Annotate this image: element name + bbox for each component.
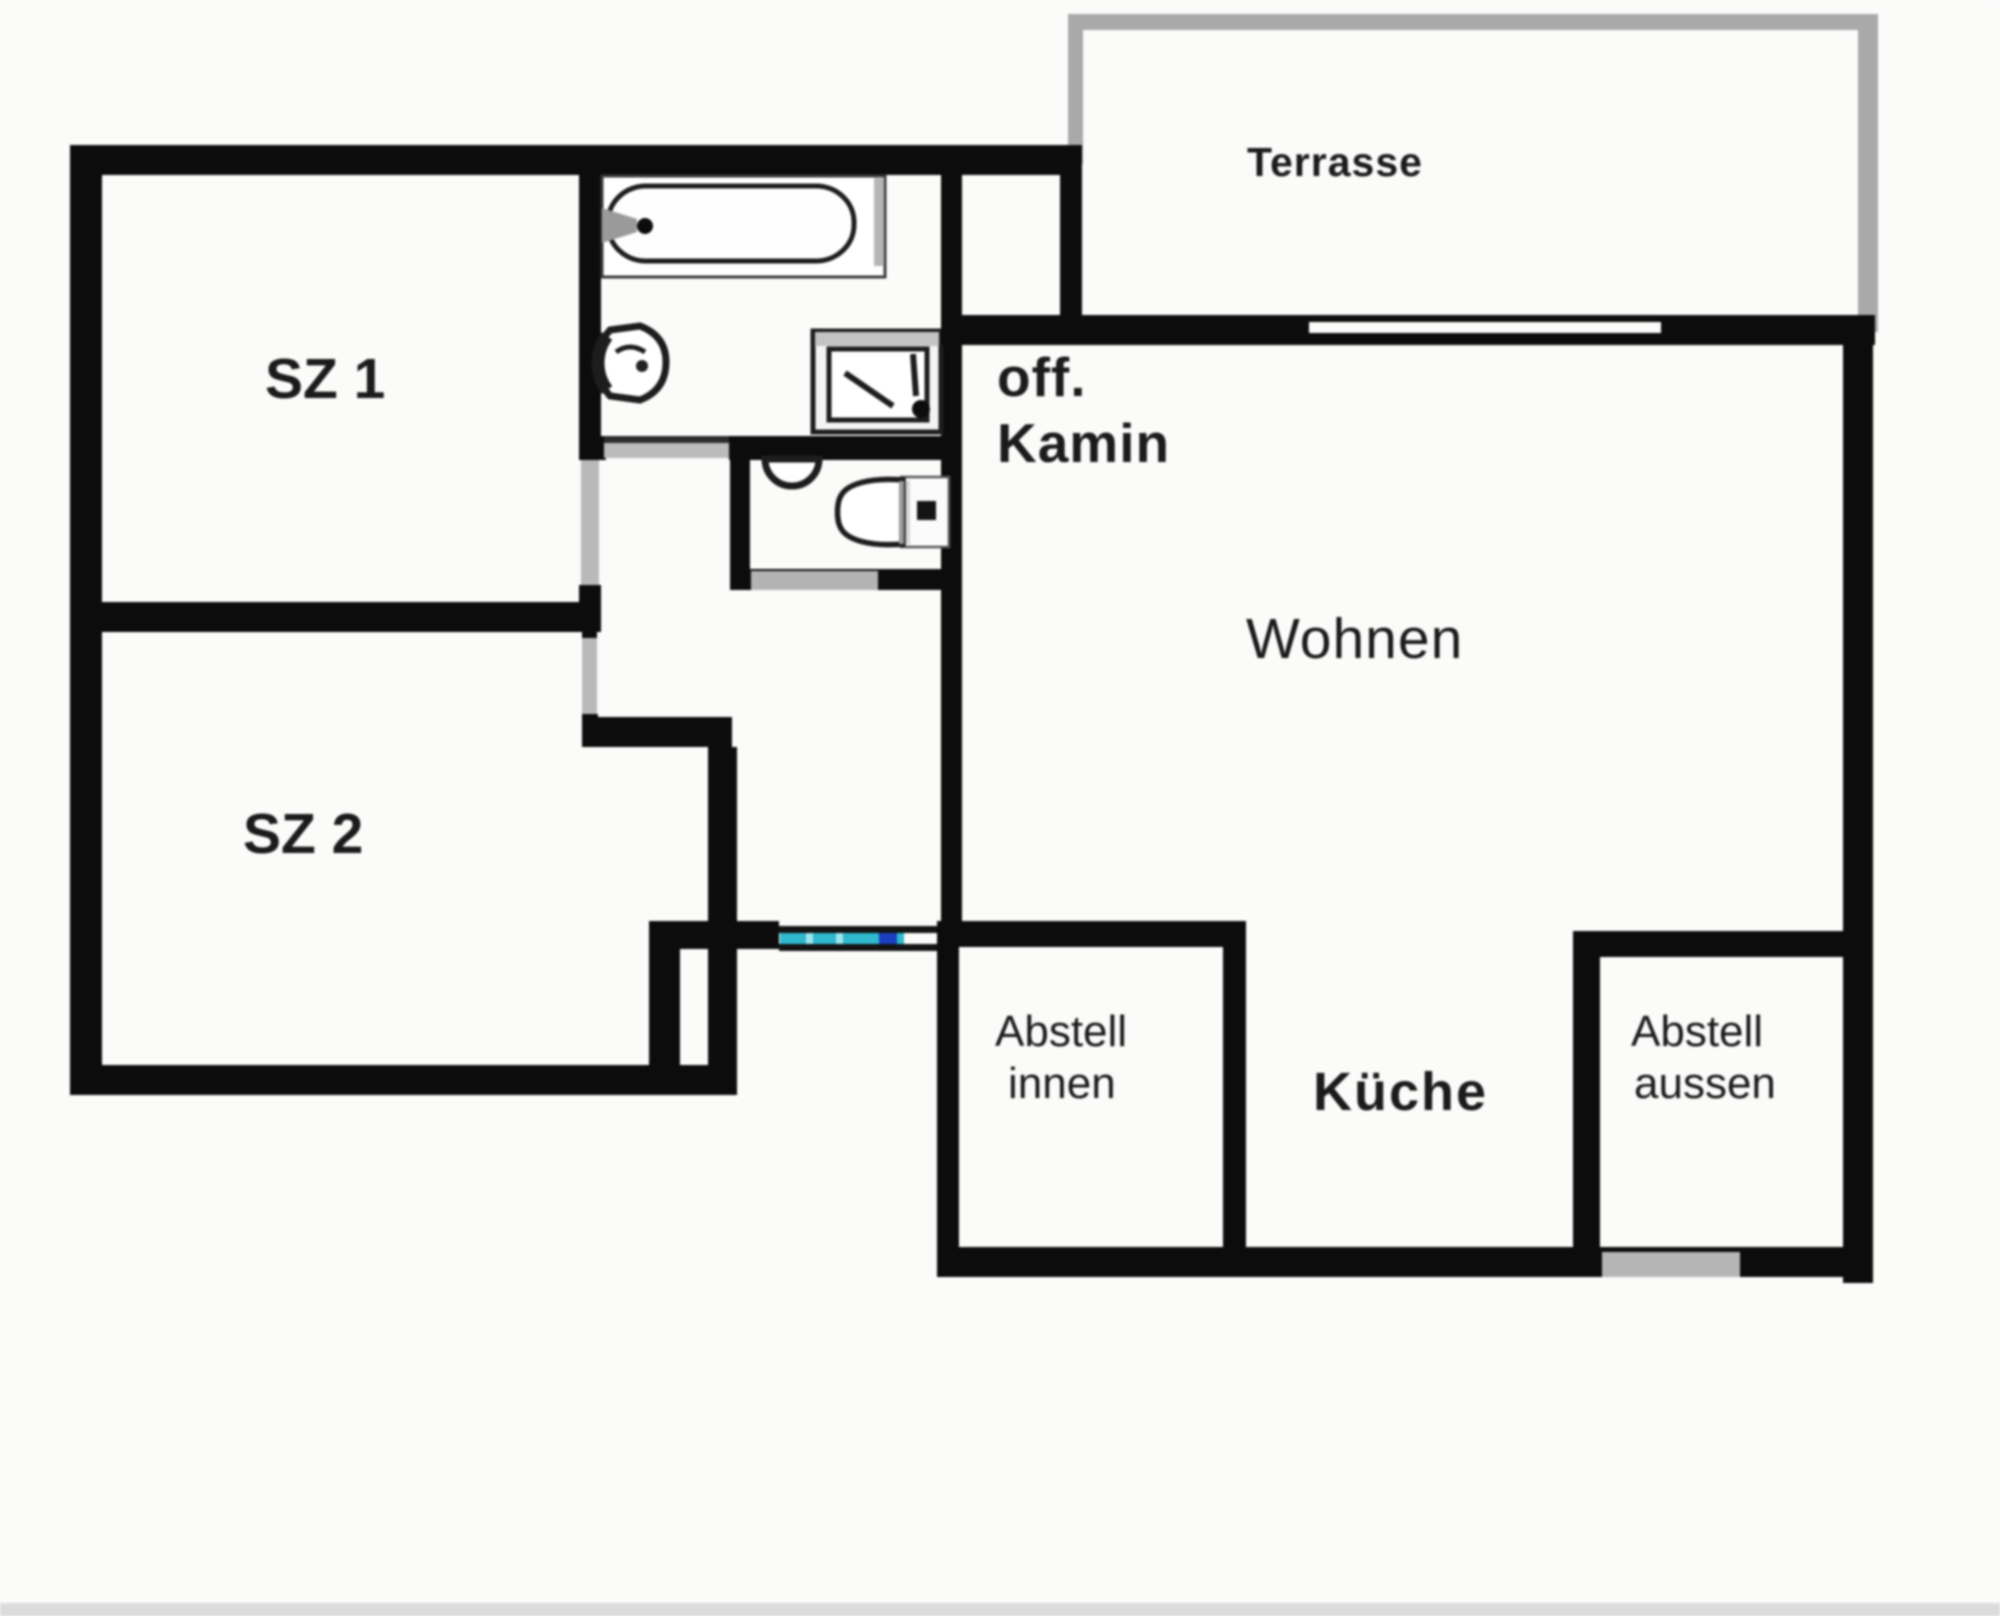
svg-text:Kamin: Kamin (997, 412, 1170, 474)
svg-text:Küche: Küche (1313, 1062, 1488, 1122)
svg-text:SZ 2: SZ 2 (243, 802, 363, 866)
svg-text:aussen: aussen (1634, 1059, 1776, 1108)
svg-text:SZ 1: SZ 1 (265, 347, 385, 411)
svg-text:Terrasse: Terrasse (1247, 139, 1423, 185)
svg-text:off.: off. (997, 346, 1087, 408)
svg-text:Wohnen: Wohnen (1246, 607, 1463, 671)
svg-text:innen: innen (1008, 1059, 1116, 1108)
svg-text:Abstell: Abstell (1631, 1007, 1763, 1056)
svg-text:Abstell: Abstell (995, 1007, 1127, 1056)
